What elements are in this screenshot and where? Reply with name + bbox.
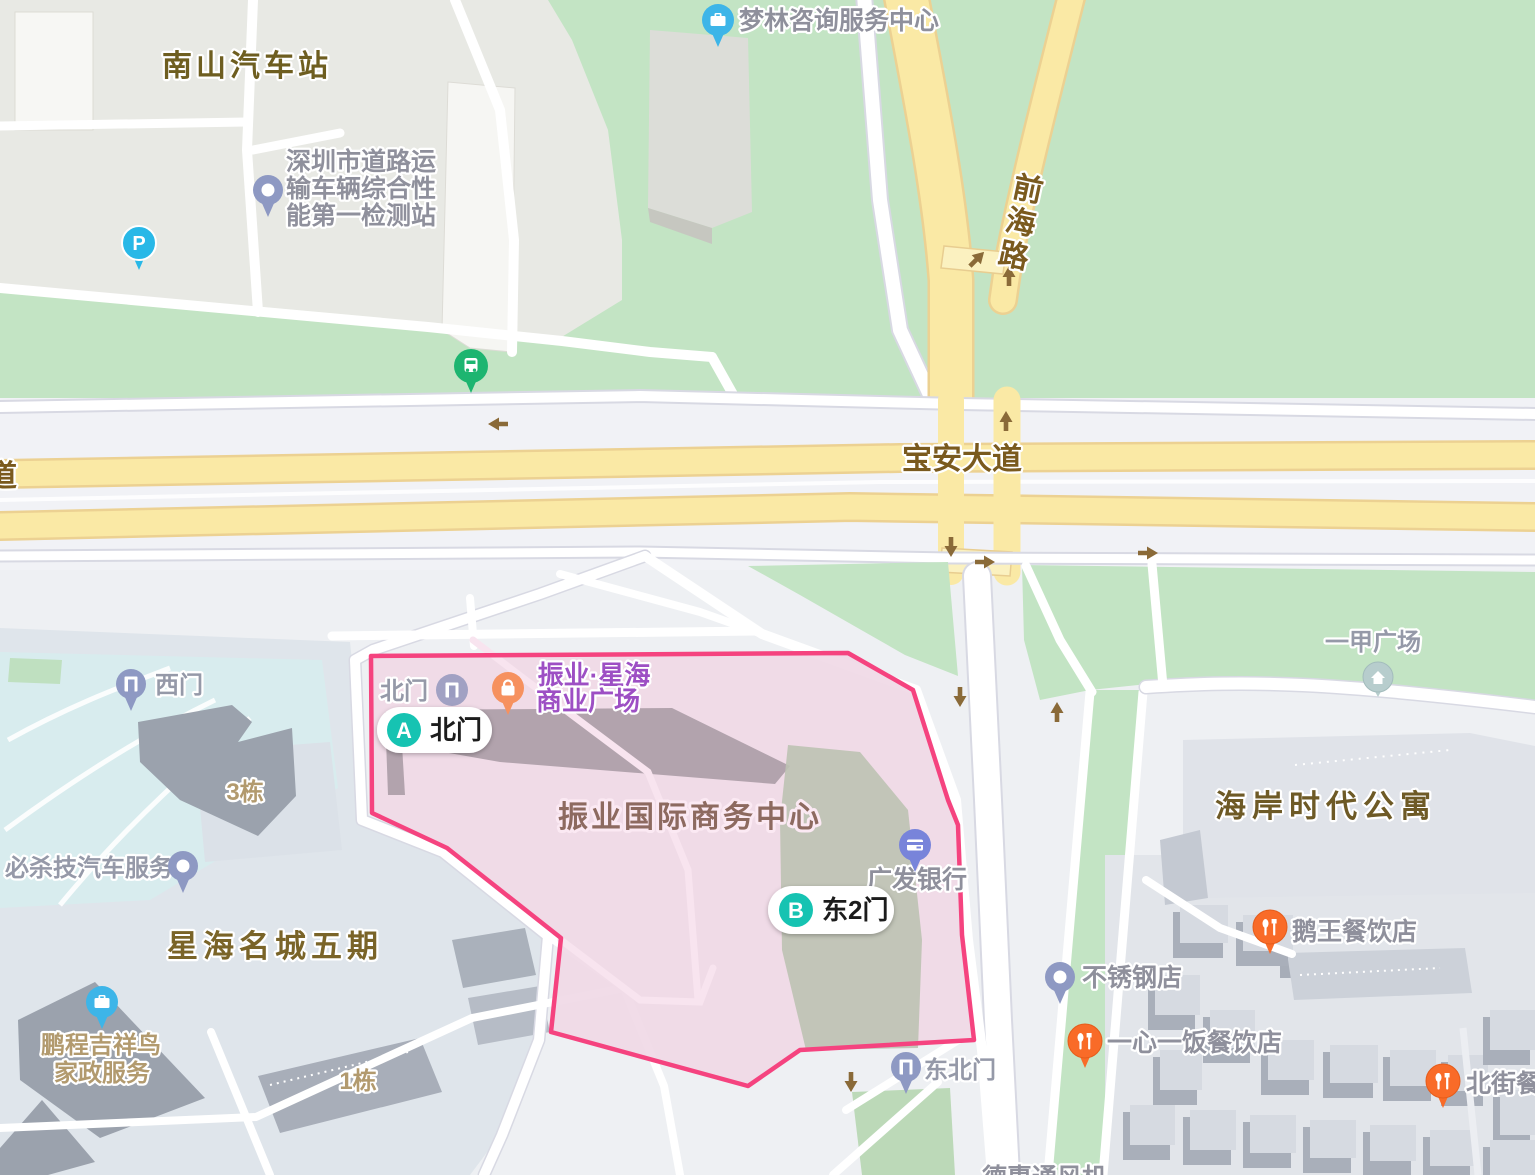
gate-label-north: 北门 (380, 677, 428, 705)
pill-b-label: 东2门 (822, 895, 888, 925)
poi-label-pengcheng-line1: 鹏程吉祥鸟 (41, 1031, 161, 1059)
area-label-xinghai: 星海名城五期 (167, 929, 383, 964)
poi-label-inspection-line1: 深圳市道路运 (286, 147, 436, 176)
poi-label-menglin: 梦林咨询服务中心 (739, 6, 939, 35)
poi-label-bishaji: 必杀技汽车服务 (5, 854, 174, 882)
north-gate-icon[interactable] (436, 674, 468, 706)
map-canvas[interactable]: P (0, 0, 1535, 1175)
gate-label-northeast: 东北门 (924, 1056, 996, 1084)
poi-label-zhenye-plaza-line2: 商业广场 (536, 686, 640, 716)
poi-label-pengcheng-line2: 家政服务 (54, 1059, 151, 1087)
poi-label-beijie: 北街餐饮 (1466, 1069, 1535, 1098)
area-label-haian: 海岸时代公寓 (1215, 789, 1437, 824)
poi-label-inspection-line3: 能第一检测站 (286, 201, 436, 230)
poi-label-yijia: 一甲广场 (1325, 628, 1421, 656)
building-label-1: 1栋 (339, 1067, 376, 1095)
poi-label-stainless: 不锈钢店 (1082, 963, 1182, 992)
poi-label-dehui-partial: 德惠通风机 (982, 1163, 1107, 1175)
building (15, 12, 93, 130)
green-patch (8, 658, 62, 684)
pill-b-letter: B (788, 898, 804, 923)
gate-label-west: 西门 (155, 671, 203, 699)
pill-a-letter: A (396, 718, 412, 743)
poi-label-ewang: 鹅王餐饮店 (1292, 917, 1417, 946)
building (648, 30, 752, 228)
poi-label-inspection-line2: 输车辆综合性 (286, 174, 436, 203)
road-label-partial: 道 (0, 460, 17, 493)
map-svg[interactable]: P (0, 0, 1535, 1175)
building-label-3: 3栋 (226, 778, 263, 806)
poi-label-yixinyifan: 一心一饭餐饮店 (1107, 1028, 1282, 1057)
gate-pill-b[interactable]: B 东2门 (768, 886, 894, 934)
pill-a-label: 北门 (430, 715, 482, 745)
gate-pill-a[interactable]: A 北门 (377, 707, 492, 753)
area-label-nanshan-bus-station: 南山汽车站 (162, 49, 332, 83)
area-label-zhenye-center: 振业国际商务中心 (558, 801, 822, 834)
road-label-baoan: 宝安大道 (902, 442, 1022, 476)
